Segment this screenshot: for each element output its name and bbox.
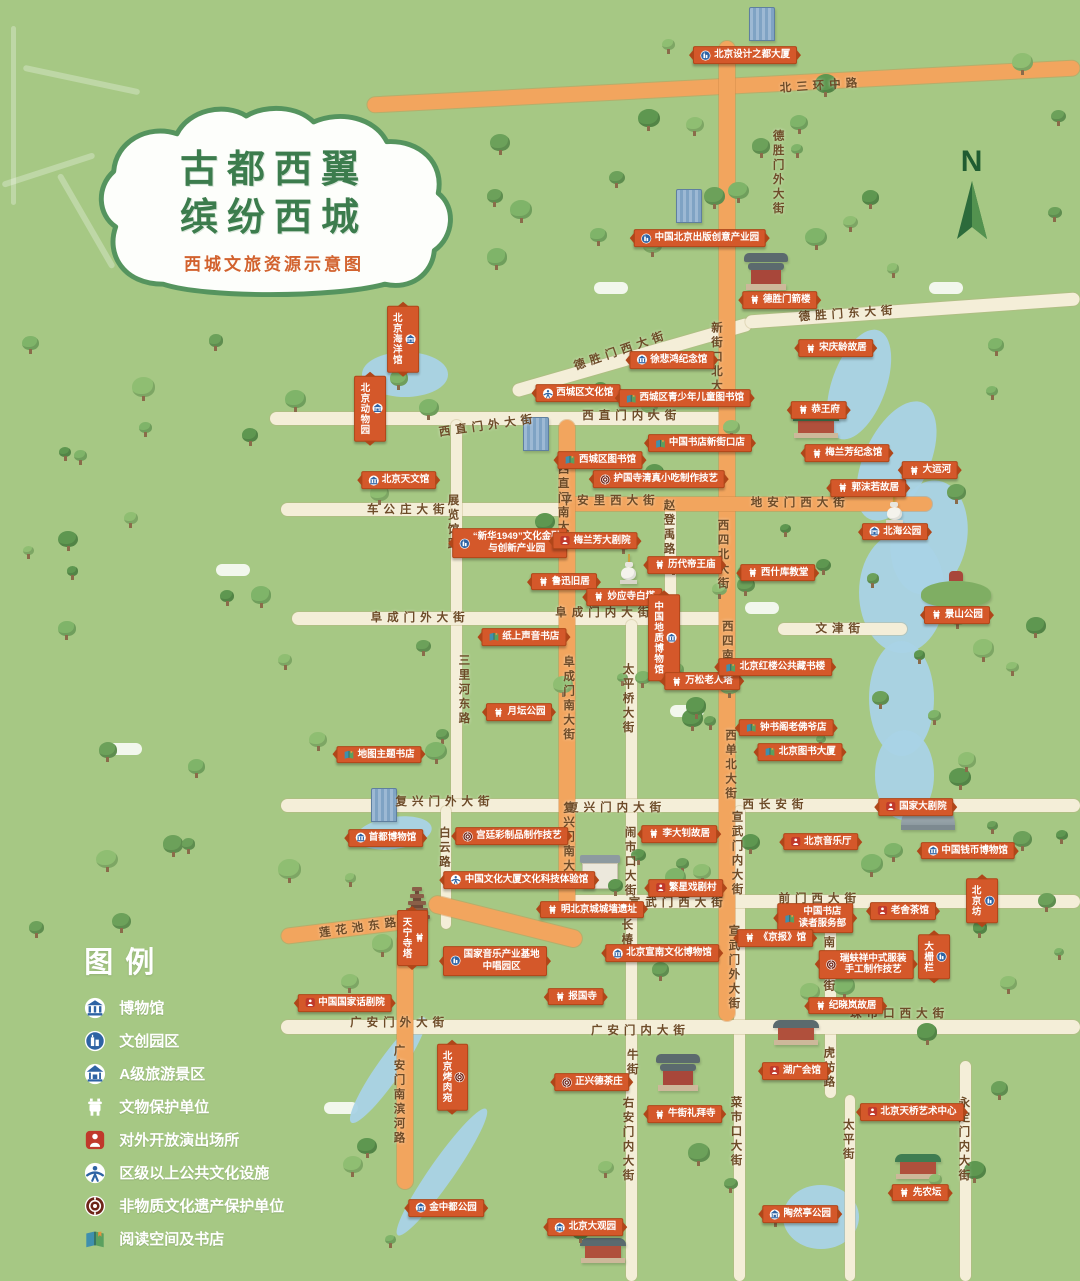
heritage-icon — [654, 1109, 665, 1120]
tree-icon — [419, 399, 439, 420]
poi-label: 北京烤肉宛 — [440, 1051, 452, 1104]
poi-label: 北京大观园 — [569, 1221, 617, 1233]
poi-label: 徐悲鸿纪念馆 — [650, 354, 707, 366]
poi-label: 护国寺清真小吃制作技艺 — [614, 473, 719, 485]
poi-label: 国家大剧院 — [899, 801, 947, 813]
road-label: 阜成门南大街 — [560, 656, 576, 743]
road-label: 右安门内大街 — [619, 1097, 635, 1184]
cloud-decoration — [929, 282, 963, 294]
poi-banner: 宋庆龄故居 — [798, 339, 874, 357]
poi-label: 北京音乐厅 — [804, 836, 852, 848]
poi-label: 明北京城城墙遗址 — [561, 904, 637, 916]
map-subtitle: 西城文旅资源示意图 — [184, 250, 364, 275]
tree-icon — [988, 338, 1004, 356]
building-publishing-park — [676, 189, 702, 223]
museum-icon — [927, 845, 938, 856]
road-label: 复兴门内大街 — [567, 799, 666, 815]
poi-label: 郭沫若故居 — [852, 482, 900, 494]
legend-item-label: 阅读空间及书店 — [119, 1228, 224, 1249]
heritage-icon — [554, 991, 565, 1002]
tree-icon — [278, 654, 292, 670]
poi-label: 中国文化大厦文化科技体验馆 — [465, 874, 589, 886]
ich-icon — [462, 831, 473, 842]
scenic-icon — [405, 334, 416, 345]
poi-label: 梅兰芳大剧院 — [574, 535, 631, 547]
poi-label: 历代帝王庙 — [668, 559, 716, 571]
creative-icon — [641, 233, 652, 244]
culture-icon — [542, 388, 553, 399]
tree-icon — [724, 1178, 738, 1194]
building-design-tower — [749, 7, 775, 41]
tree-icon — [1056, 830, 1068, 844]
tree-icon — [987, 821, 997, 834]
legend-item: 阅读空间及书店 — [84, 1228, 284, 1250]
poi-label: 西什库教堂 — [761, 567, 809, 579]
heritage-icon — [909, 465, 920, 476]
creative-icon — [84, 1030, 106, 1052]
poi-label: 宫廷彩制品制作技艺 — [476, 831, 562, 843]
heritage-icon — [493, 707, 504, 718]
tree-icon — [309, 732, 327, 751]
tree-icon — [490, 134, 510, 155]
road-label: 平安里西大街 — [561, 492, 660, 508]
poi-label: 北京设计之都大厦 — [714, 49, 790, 61]
road-label: 白云路 — [436, 826, 452, 870]
poi-banner: 金中都公园 — [408, 1199, 484, 1217]
tree-icon — [1038, 893, 1056, 912]
map-canvas: 古都西翼 缤纷西城 西城文旅资源示意图 N 图例 博物馆文创园区A级旅游景区文物… — [0, 0, 1080, 1281]
legend-item-label: 文创园区 — [119, 1030, 179, 1051]
road-label: 文津街 — [815, 620, 865, 636]
tree-icon — [867, 573, 879, 588]
poi-banner: 老舍茶馆 — [870, 902, 936, 920]
tree-icon — [791, 144, 803, 158]
poi-banner: 北京图书大厦 — [758, 743, 843, 761]
poi-label: 宋庆龄故居 — [819, 342, 867, 354]
poi-label: 景山公园 — [945, 609, 983, 621]
poi-banner: 北京大观园 — [548, 1218, 624, 1236]
bookstore-icon — [785, 913, 796, 924]
building-huguang-guild — [773, 1020, 819, 1045]
tree-icon — [780, 524, 791, 537]
heritage-icon — [747, 567, 758, 578]
poi-banner: 钟书阁老佛爷店 — [739, 719, 834, 737]
tree-icon — [843, 216, 858, 233]
museum-icon — [368, 475, 379, 486]
poi-label: 李大钊故居 — [663, 828, 711, 840]
road-label: 宣武门内大街 — [729, 811, 745, 898]
creative-icon — [936, 951, 947, 962]
poi-banner: 月坛公园 — [486, 703, 552, 721]
poi-banner: 北京天文馆 — [361, 471, 437, 489]
performance-icon — [560, 535, 571, 546]
heritage-icon — [414, 932, 425, 943]
poi-label: 正兴德茶庄 — [575, 1077, 623, 1089]
poi-banner: 北京坊 — [966, 878, 998, 924]
poi-label: 北京红楼公共藏书楼 — [740, 661, 826, 673]
poi-banner: 西城区图书馆 — [558, 451, 643, 469]
poi-label: 湖广会馆 — [783, 1065, 821, 1077]
bookstore-icon — [746, 722, 757, 733]
poi-banner: 首都博物馆 — [348, 829, 424, 847]
heritage-icon — [797, 404, 808, 415]
building-beihai-white-pagoda — [885, 494, 903, 524]
poi-label: 繁星戏剧村 — [669, 882, 717, 894]
poi-banner: 中国地质博物馆 — [648, 594, 680, 682]
poi-label: 国家音乐产业基地 中唱园区 — [464, 949, 540, 973]
poi-banner: 中国钱币博物馆 — [920, 842, 1015, 860]
north-arrow-icon — [953, 181, 991, 241]
poi-label: 瑞蚨祥中式服装 手工制作技艺 — [840, 953, 907, 977]
road-label: 太平桥大街 — [619, 663, 635, 736]
tree-icon — [22, 336, 39, 354]
road-label: 西直门内大街 — [582, 407, 681, 423]
poi-label: 梅兰芳纪念馆 — [825, 448, 882, 460]
tree-icon — [416, 640, 430, 656]
heritage-icon — [649, 828, 660, 839]
poi-label: 北京天桥艺术中心 — [881, 1106, 957, 1118]
heritage-icon — [838, 483, 849, 494]
poi-banner: 《京报》馆 — [738, 929, 814, 947]
tree-icon — [487, 248, 508, 270]
tree-icon — [609, 171, 625, 189]
tree-icon — [1012, 53, 1033, 75]
tree-icon — [345, 873, 356, 887]
legend-item: 对外开放演出场所 — [84, 1129, 284, 1151]
building-jingshan-hill — [921, 571, 991, 607]
poi-banner: 历代帝王庙 — [647, 556, 723, 574]
compass: N — [953, 145, 991, 246]
poi-banner: 北京宣南文化博物馆 — [605, 944, 719, 962]
poi-banner: 地图主题书店 — [337, 746, 422, 764]
bookstore-icon — [765, 746, 776, 757]
tree-icon — [590, 228, 606, 246]
poi-banner: 北京音乐厅 — [783, 833, 859, 851]
culture-icon — [84, 1162, 106, 1184]
scenic-icon — [555, 1222, 566, 1233]
legend-item-label: 非物质文化遗产保护单位 — [119, 1195, 284, 1216]
poi-banner: 国家大剧院 — [878, 798, 954, 816]
tree-icon — [686, 117, 704, 136]
poi-label: 北京图书大厦 — [779, 746, 836, 758]
tree-icon — [163, 835, 184, 857]
poi-banner: 李大钊故居 — [642, 825, 718, 843]
road-label: 西长安街 — [742, 796, 808, 812]
tree-icon — [862, 190, 880, 209]
heritage-icon — [931, 609, 942, 620]
tree-icon — [928, 710, 941, 725]
legend-item-label: A级旅游景区 — [119, 1063, 205, 1084]
performance-icon — [867, 1106, 878, 1117]
poi-banner: 中国北京出版创意产业园 — [634, 229, 767, 247]
tree-icon — [991, 1081, 1008, 1100]
heritage-icon — [671, 676, 682, 687]
poi-label: 天宁寺塔 — [400, 917, 412, 959]
museum-icon — [666, 632, 677, 643]
heritage-icon — [547, 904, 558, 915]
poi-banner: 西城区文化馆 — [535, 384, 620, 402]
building-white-pagoda-temple — [620, 554, 638, 584]
tree-icon — [1000, 976, 1017, 994]
legend-title: 图例 — [84, 939, 284, 981]
heritage-icon — [899, 1187, 910, 1198]
performance-icon — [885, 802, 896, 813]
road-label: 阜成门外大街 — [371, 609, 470, 625]
poi-label: 中国北京出版创意产业园 — [655, 232, 760, 244]
ich-icon — [454, 1072, 465, 1083]
compass-n-label: N — [953, 145, 991, 179]
building-niujie-mosque — [656, 1054, 700, 1091]
tree-icon — [58, 621, 75, 640]
tree-icon — [209, 334, 223, 350]
poi-banner: 湖广会馆 — [762, 1062, 828, 1080]
culture-icon — [451, 875, 462, 886]
poi-label: 老舍茶馆 — [891, 905, 929, 917]
cloud-decoration — [216, 564, 250, 576]
bookstore-icon — [344, 749, 355, 760]
bookstore-icon — [625, 393, 636, 404]
poi-banner: 恭王府 — [790, 401, 847, 419]
poi-label: 西城区文化馆 — [556, 387, 613, 399]
tree-icon — [728, 182, 749, 204]
poi-banner: 北京烤肉宛 — [437, 1044, 469, 1111]
poi-banner: 大运河 — [902, 461, 959, 479]
tree-icon — [704, 716, 716, 730]
title-cloud: 古都西翼 缤纷西城 西城文旅资源示意图 — [86, 104, 462, 312]
tree-icon — [884, 843, 903, 863]
poi-label: 中国书店新街口店 — [669, 437, 745, 449]
poi-label: 金中都公园 — [429, 1202, 477, 1214]
bookstore-icon — [655, 438, 666, 449]
bookstore-icon — [726, 662, 737, 673]
tree-icon — [139, 422, 152, 437]
road-label: 复兴门外大街 — [395, 793, 494, 809]
legend-item: 文物保护单位 — [84, 1096, 284, 1118]
poi-label: 《京报》馆 — [759, 932, 807, 944]
road-label: 德胜门外大街 — [770, 129, 786, 216]
tree-icon — [67, 566, 78, 580]
heritage-icon — [805, 343, 816, 354]
poi-banner: 郭沫若故居 — [831, 479, 907, 497]
tree-icon — [872, 691, 889, 709]
poi-label: 北京坊 — [969, 885, 981, 917]
tree-icon — [914, 650, 926, 664]
poi-label: 牛街礼拜寺 — [668, 1109, 716, 1121]
cloud-decoration — [745, 602, 779, 614]
tree-icon — [58, 531, 78, 552]
road-label: 广安门内大街 — [591, 1022, 690, 1038]
performance-icon — [655, 882, 666, 893]
road-label: 菜市口大街 — [727, 1096, 743, 1169]
poi-banner: 宫廷彩制品制作技艺 — [455, 828, 569, 846]
poi-label: 德胜门箭楼 — [763, 294, 811, 306]
poi-label: 纸上声音书店 — [502, 631, 559, 643]
museum-icon — [636, 354, 647, 365]
poi-label: 大运河 — [923, 464, 952, 476]
poi-label: 北京天文馆 — [382, 474, 430, 486]
tree-icon — [99, 742, 117, 762]
scenic-icon — [869, 526, 880, 537]
scenic-icon — [415, 1202, 426, 1213]
heritage-icon — [745, 932, 756, 943]
poi-banner: 北京海洋馆 — [387, 306, 419, 373]
tree-icon — [425, 742, 447, 764]
scenic-icon — [372, 403, 383, 414]
poi-banner: 明北京城城墙遗址 — [540, 901, 644, 919]
poi-banner: 陶然亭公园 — [763, 1205, 839, 1223]
tree-icon — [510, 200, 532, 222]
ich-icon — [84, 1195, 106, 1217]
legend-item-label: 区级以上公共文化设施 — [119, 1162, 269, 1183]
poi-banner: 中国书店新街口店 — [648, 434, 752, 452]
tree-icon — [74, 450, 87, 465]
heritage-icon — [538, 576, 549, 587]
ich-icon — [600, 474, 611, 485]
performance-icon — [790, 836, 801, 847]
heritage-icon — [654, 559, 665, 570]
tree-icon — [188, 759, 206, 778]
poi-label: 中国地质博物馆 — [651, 601, 663, 675]
creative-icon — [984, 895, 995, 906]
tree-icon — [132, 377, 155, 401]
poi-label: 鲁迅旧居 — [552, 576, 590, 588]
tree-icon — [112, 913, 132, 934]
legend-item-label: 文物保护单位 — [119, 1096, 209, 1117]
poi-banner: 西城区青少年儿童图书馆 — [618, 389, 751, 407]
road-label: 闹市口大街 — [622, 826, 638, 899]
tree-icon — [752, 138, 770, 157]
legend-item-label: 博物馆 — [119, 997, 164, 1018]
tree-icon — [662, 39, 676, 55]
tree-icon — [357, 1138, 376, 1158]
road-label: 赵登禹路 — [661, 499, 677, 557]
tree-icon — [385, 1235, 396, 1248]
tree-icon — [686, 697, 706, 718]
heritage-icon — [84, 1096, 106, 1118]
poi-banner: 正兴德茶庄 — [554, 1074, 630, 1092]
ich-icon — [826, 959, 837, 970]
poi-banner: 北京天桥艺术中心 — [860, 1103, 964, 1121]
tree-icon — [372, 934, 394, 956]
map-title-line2: 缤纷西城 — [180, 195, 368, 243]
cloud-decoration — [594, 282, 628, 294]
tree-icon — [947, 484, 966, 504]
tree-icon — [688, 1143, 710, 1166]
road-label: 广安门南滨河路 — [391, 1045, 407, 1147]
scenic-icon — [770, 1209, 781, 1220]
poi-label: 万松老人塔 — [685, 676, 733, 688]
tree-icon — [638, 109, 659, 131]
poi-banner: 瑞蚨祥中式服装 手工制作技艺 — [819, 950, 914, 980]
poi-label: 中国书店 读者服务部 — [799, 907, 847, 931]
poi-label: 中国国家话剧院 — [318, 997, 385, 1009]
tree-icon — [343, 1156, 363, 1177]
poi-label: 地图主题书店 — [358, 749, 415, 761]
poi-banner: 大栅栏 — [918, 934, 950, 980]
road-label: 太平街 — [840, 1118, 856, 1162]
tree-icon — [917, 1023, 938, 1045]
legend-item: 文创园区 — [84, 1030, 284, 1052]
tree-icon — [598, 1161, 614, 1178]
museum-icon — [84, 997, 106, 1019]
road-label: 广安门外大街 — [350, 1014, 449, 1030]
poi-banner: 德胜门箭楼 — [742, 291, 818, 309]
poi-banner: 北京红楼公共藏书楼 — [719, 658, 833, 676]
tree-icon — [1006, 662, 1018, 676]
tree-icon — [341, 974, 359, 993]
poi-label: “新华1949”文化金融 与创新产业园 — [473, 531, 561, 555]
creative-icon — [459, 538, 470, 549]
performance-icon — [769, 1065, 780, 1076]
tree-icon — [124, 512, 138, 528]
poi-banner: 中国国家话剧院 — [297, 994, 392, 1012]
tree-icon — [96, 850, 118, 873]
performance-icon — [84, 1129, 106, 1151]
poi-banner: 梅兰芳纪念馆 — [804, 445, 889, 463]
poi-label: 纪晓岚故居 — [829, 1000, 877, 1012]
tree-icon — [805, 228, 827, 250]
poi-label: 北京动物园 — [358, 382, 370, 435]
poi-label: 北海公园 — [883, 526, 921, 538]
performance-icon — [877, 905, 888, 916]
tree-icon — [220, 590, 234, 606]
road-label: 三里河东路 — [455, 654, 471, 727]
heritage-icon — [811, 448, 822, 459]
poi-label: 中国钱币博物馆 — [941, 845, 1008, 857]
performance-icon — [304, 998, 315, 1009]
bookstore-icon — [84, 1228, 106, 1250]
building-capital-museum — [371, 788, 397, 822]
map-title-line1: 古都西翼 — [180, 147, 368, 195]
poi-banner: 天宁寺塔 — [397, 910, 429, 966]
poi-banner: 梅兰芳大剧院 — [553, 532, 638, 550]
building-deshengmen-gate — [744, 253, 788, 290]
road-label: 阜成门内大街 — [555, 604, 654, 620]
bookstore-icon — [565, 454, 576, 465]
poi-label: 恭王府 — [811, 404, 840, 416]
poi-label: 先农坛 — [913, 1187, 942, 1199]
tree-icon — [1054, 948, 1064, 961]
tree-icon — [487, 189, 503, 207]
poi-banner: 徐悲鸿纪念馆 — [629, 351, 714, 369]
poi-label: 报国寺 — [568, 991, 597, 1003]
road-label: 西四北大街 — [715, 518, 731, 591]
ich-icon — [561, 1077, 572, 1088]
scenic-icon — [84, 1063, 106, 1085]
poi-banner: 先农坛 — [892, 1184, 949, 1202]
poi-banner: 国家音乐产业基地 中唱园区 — [443, 946, 547, 976]
poi-label: 西城区图书馆 — [579, 454, 636, 466]
tree-icon — [958, 752, 976, 772]
legend-item-label: 对外开放演出场所 — [119, 1129, 239, 1150]
road-label: 车公庄大街 — [367, 501, 450, 517]
legend-item: 非物质文化遗产保护单位 — [84, 1195, 284, 1217]
tree-icon — [1051, 110, 1066, 127]
poi-banner: 纪晓岚故居 — [808, 997, 884, 1015]
tree-icon — [790, 115, 808, 134]
legend: 图例 博物馆文创园区A级旅游景区文物保护单位对外开放演出场所区级以上公共文化设施… — [84, 939, 284, 1261]
poi-banner: 繁星戏剧村 — [648, 879, 724, 897]
poi-label: 北京宣南文化博物馆 — [626, 947, 712, 959]
poi-banner: 西什库教堂 — [740, 564, 816, 582]
tree-icon — [887, 263, 900, 278]
poi-label: 大栅栏 — [921, 941, 933, 973]
poi-banner: 纸上声音书店 — [481, 628, 566, 646]
tree-icon — [1026, 617, 1046, 638]
tree-icon — [278, 859, 301, 882]
poi-label: 钟书阁老佛爷店 — [760, 722, 827, 734]
tree-icon — [59, 447, 71, 461]
